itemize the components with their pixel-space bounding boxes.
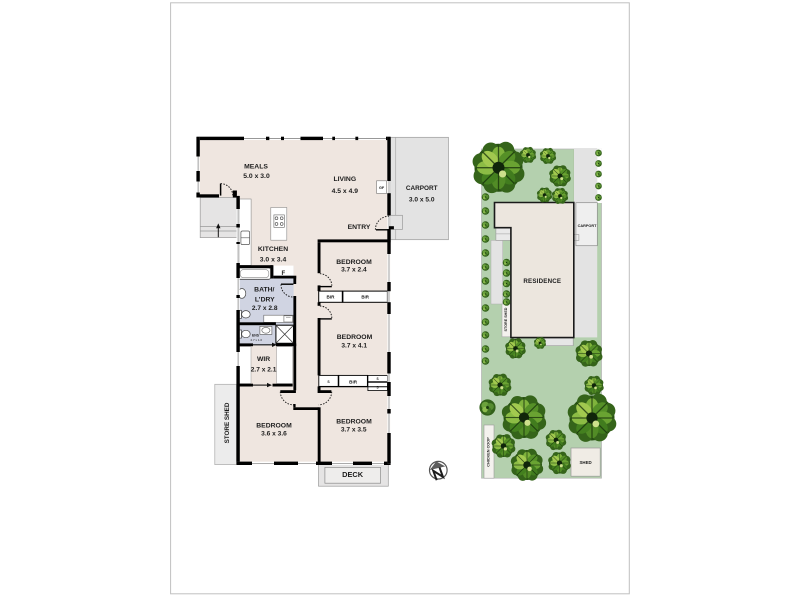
svg-text:BIR: BIR (361, 294, 369, 299)
svg-text:DECK: DECK (342, 470, 364, 479)
svg-text:RESIDENCE: RESIDENCE (523, 278, 561, 285)
svg-text:CARPORT: CARPORT (578, 224, 597, 228)
svg-text:KITCHEN: KITCHEN (258, 246, 288, 253)
svg-text:STORE SHED: STORE SHED (224, 402, 231, 443)
svg-text:5.0 x 3.0: 5.0 x 3.0 (243, 173, 270, 180)
svg-text:BIR: BIR (327, 294, 336, 299)
svg-text:SHED: SHED (579, 460, 591, 465)
svg-text:3.7 x 4.1: 3.7 x 4.1 (341, 342, 367, 349)
svg-text:3.0 x 3.4: 3.0 x 3.4 (260, 256, 287, 263)
svg-text:STORE SHED: STORE SHED (504, 307, 508, 331)
svg-text:LIVING: LIVING (333, 176, 356, 183)
svg-text:BEDROOM: BEDROOM (256, 423, 292, 430)
svg-text:ENS: ENS (252, 334, 260, 338)
svg-text:MEALS: MEALS (244, 164, 268, 171)
svg-text:3.6 x 3.6: 3.6 x 3.6 (261, 431, 287, 438)
svg-text:CARPORT: CARPORT (406, 185, 438, 192)
svg-text:BEDROOM: BEDROOM (337, 334, 373, 341)
svg-text:WIR: WIR (257, 356, 270, 363)
svg-text:CHICKEN COOP: CHICKEN COOP (486, 437, 490, 467)
svg-text:2.7 x 2.8: 2.7 x 2.8 (252, 305, 278, 312)
svg-text:3.7 x 2.4: 3.7 x 2.4 (341, 267, 367, 274)
svg-text:2.7 x 1.0: 2.7 x 1.0 (251, 338, 263, 342)
svg-text:3.7 x 3.5: 3.7 x 3.5 (341, 427, 367, 434)
svg-text:BEDROOM: BEDROOM (336, 259, 372, 266)
svg-text:L’DRY: L’DRY (255, 296, 275, 303)
svg-text:BEDROOM: BEDROOM (336, 419, 372, 426)
svg-text:GF: GF (379, 186, 385, 190)
svg-text:3.0 x 5.0: 3.0 x 5.0 (409, 197, 435, 204)
svg-text:4.5 x 4.9: 4.5 x 4.9 (332, 188, 359, 195)
svg-text:2.7 x 2.1: 2.7 x 2.1 (251, 367, 277, 374)
svg-text:S: S (377, 377, 379, 381)
svg-text:BATH/: BATH/ (254, 286, 274, 293)
svg-text:S: S (377, 386, 379, 390)
svg-text:BIR: BIR (349, 379, 358, 384)
svg-text:ENTRY: ENTRY (348, 224, 371, 231)
